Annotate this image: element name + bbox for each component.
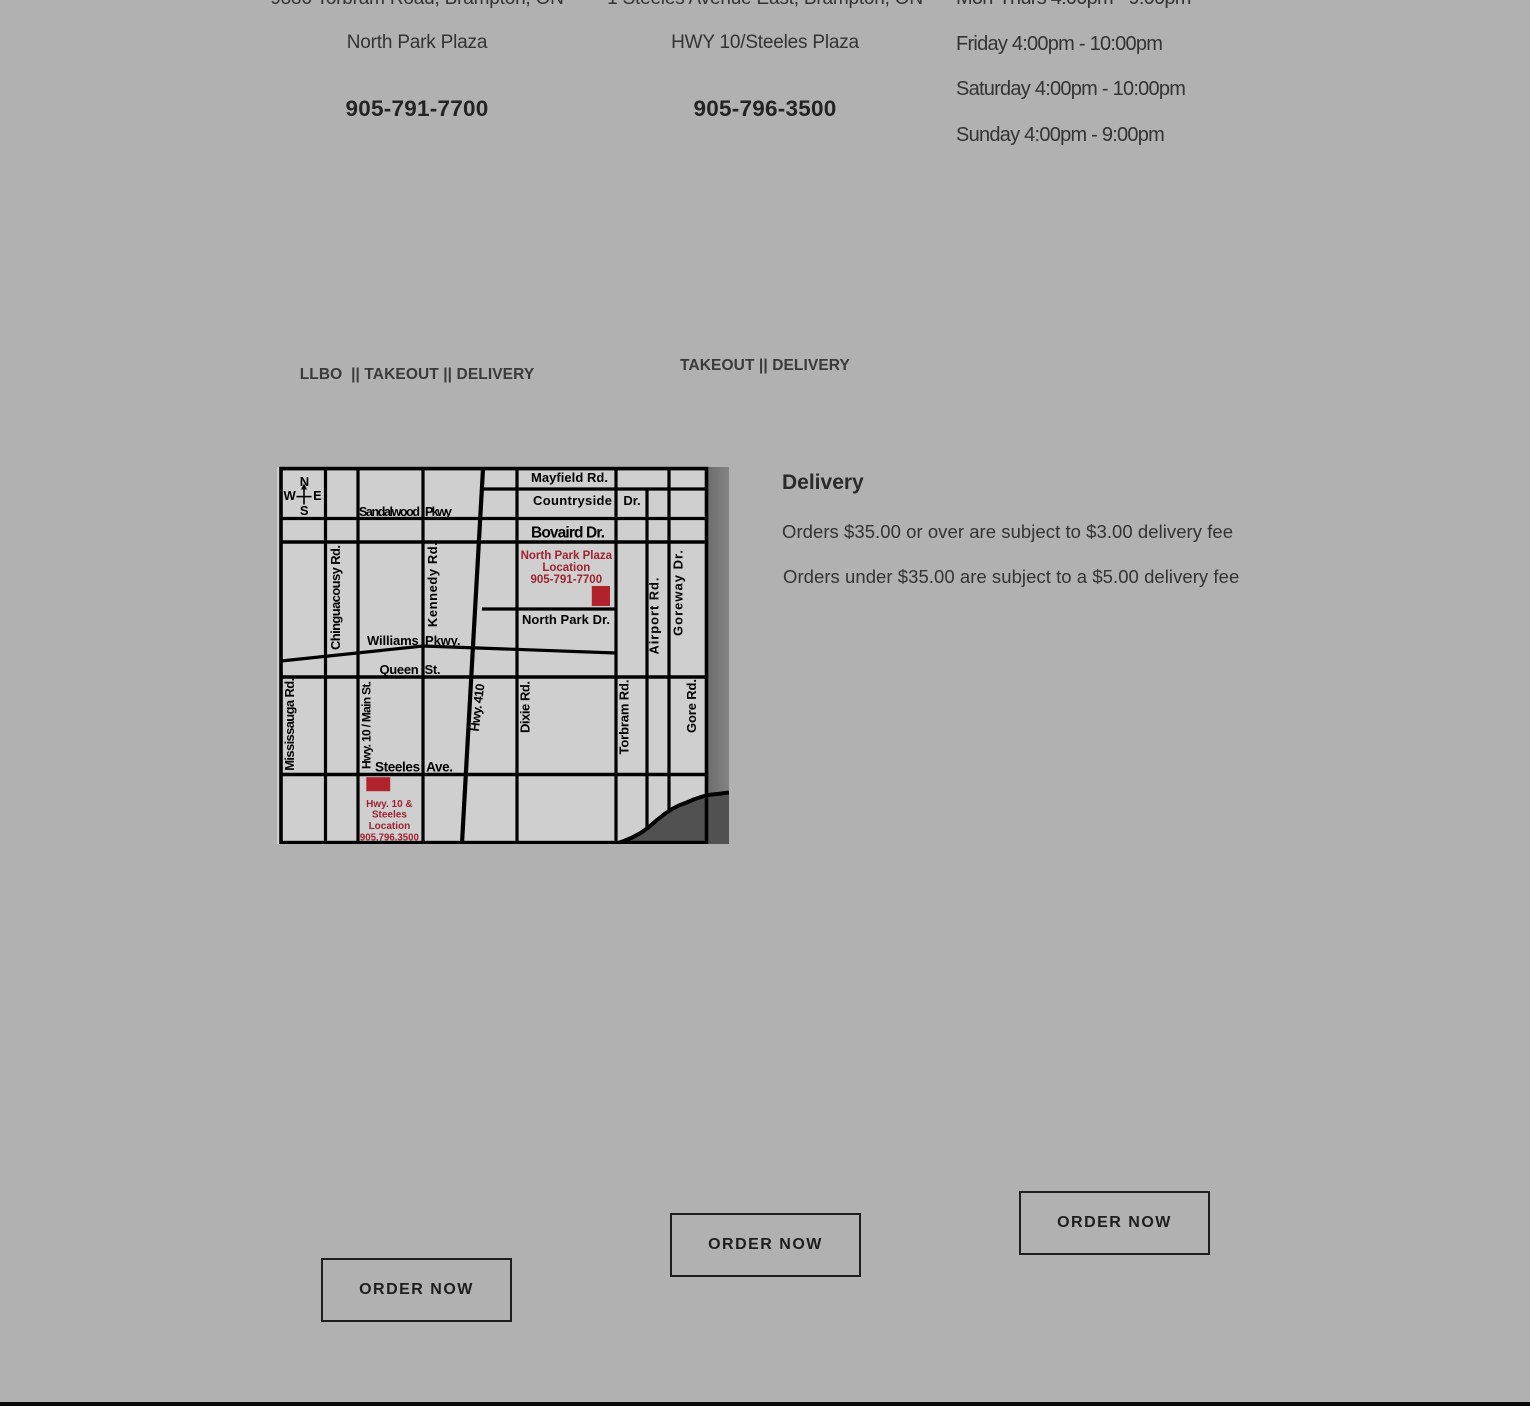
svg-text:Hwy. 10 &: Hwy. 10 &	[366, 799, 413, 810]
svg-text:S: S	[300, 503, 309, 518]
svg-text:Location: Location	[542, 562, 590, 574]
svg-text:W: W	[283, 488, 296, 503]
svg-text:Steeles Ave.: Steeles Ave.	[375, 760, 453, 775]
svg-text:Pkwy: Pkwy	[425, 505, 452, 519]
svg-text:Gore Rd.: Gore Rd.	[684, 679, 699, 733]
svg-text:Williams Pkwy.: Williams Pkwy.	[367, 633, 461, 648]
svg-text:Queen St.: Queen St.	[380, 662, 441, 677]
svg-text:North Park Dr.: North Park Dr.	[522, 612, 610, 627]
svg-text:Hwy. 10 / Main St.: Hwy. 10 / Main St.	[360, 681, 374, 769]
svg-text:Dr.: Dr.	[623, 493, 640, 508]
svg-text:Torbram Rd.: Torbram Rd.	[617, 680, 632, 755]
svg-text:905.796.3500: 905.796.3500	[360, 833, 419, 844]
svg-text:Sandalwood: Sandalwood	[359, 505, 420, 519]
svg-text:905-791-7700: 905-791-7700	[530, 574, 602, 586]
svg-text:Mayfield Rd.: Mayfield Rd.	[531, 470, 608, 485]
svg-text:Chinguacousy Rd.: Chinguacousy Rd.	[328, 545, 343, 650]
svg-text:Dixie Rd.: Dixie Rd.	[518, 681, 533, 733]
svg-text:Airport Rd.: Airport Rd.	[647, 578, 662, 655]
svg-text:Countryside: Countryside	[533, 493, 612, 508]
svg-text:E: E	[313, 488, 322, 503]
svg-text:Mississauga Rd.: Mississauga Rd.	[282, 678, 297, 771]
svg-text:Bovaird Dr.: Bovaird Dr.	[531, 525, 605, 542]
svg-text:Goreway Dr.: Goreway Dr.	[671, 550, 686, 636]
svg-text:Location: Location	[369, 821, 411, 832]
svg-text:Kennedy Rd.: Kennedy Rd.	[425, 542, 440, 627]
svg-text:Steeles: Steeles	[372, 810, 407, 821]
svg-text:North Park Plaza: North Park Plaza	[521, 550, 613, 562]
